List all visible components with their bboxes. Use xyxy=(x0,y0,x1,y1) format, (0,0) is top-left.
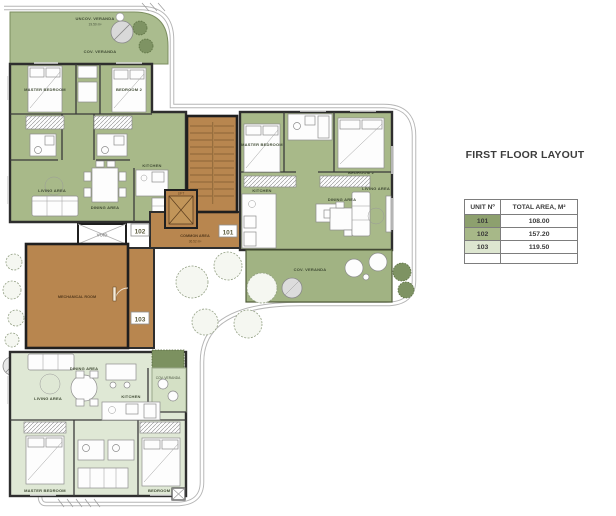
unit-103: LIVING AREA DINING AREA KITCHEN MASTER B… xyxy=(8,350,186,496)
void: VOID xyxy=(78,224,126,244)
column-header-area: TOTAL AREA, M² xyxy=(501,200,578,215)
table-row-empty xyxy=(465,254,578,264)
bed xyxy=(244,124,280,172)
room-label: LIVING AREA xyxy=(38,188,66,193)
tree-icon xyxy=(176,266,208,298)
room-label: COV. VERANDA xyxy=(294,267,327,272)
common-area-label: COMMON AREA xyxy=(180,234,210,238)
table-header-row: UNIT Nº TOTAL AREA, M² xyxy=(465,200,578,215)
column-header-unit: UNIT Nº xyxy=(465,200,501,215)
page-title: FIRST FLOOR LAYOUT xyxy=(452,149,598,161)
room-label: MASTER BEDROOM xyxy=(24,488,66,493)
unit-tag-103: 103 xyxy=(135,317,146,324)
room-label: LIVING AREA xyxy=(34,396,62,401)
shrub-icon xyxy=(8,310,24,326)
room-label: BEDROOM 2 xyxy=(348,170,375,175)
room-label: BEDROOM 2 xyxy=(148,488,175,493)
tree-icon xyxy=(139,39,153,53)
room-label: MASTER BEDROOM xyxy=(241,142,283,147)
sofa xyxy=(28,354,74,370)
tree-icon xyxy=(398,282,414,298)
room-label: KITCHEN xyxy=(121,394,140,399)
area-table: UNIT Nº TOTAL AREA, M² 101 108.00 102 15… xyxy=(464,199,578,264)
tree-icon xyxy=(214,252,242,280)
area-cell: 119.50 xyxy=(501,241,578,254)
lift: LIFT xyxy=(165,190,197,228)
room-label: COV. VERANDA xyxy=(156,376,181,380)
room-label: COV. VERANDA xyxy=(84,49,117,54)
shrub-icon xyxy=(3,281,21,299)
void-label: VOID xyxy=(97,233,108,238)
room-label: UNCOV. VERANDA xyxy=(76,16,115,21)
unit-cell-empty xyxy=(465,254,501,264)
table-row: 101 108.00 xyxy=(465,215,578,228)
tree-icon xyxy=(393,263,411,281)
room-label: BEDROOM 2 xyxy=(116,87,143,92)
unit-102: UNCOV. VERANDA 19.50 m² COV. VERANDA MAS… xyxy=(8,12,186,222)
room-label: DINING AREA xyxy=(70,366,99,371)
common-corridor xyxy=(128,248,154,348)
area-cell-empty xyxy=(501,254,578,264)
unit103-planter xyxy=(152,350,184,368)
closet xyxy=(78,66,97,102)
unit-cell: 102 xyxy=(465,228,501,241)
shrub-icon xyxy=(6,254,22,270)
room-label: KITCHEN xyxy=(252,188,271,193)
kitchen-counter xyxy=(102,402,160,420)
room-label: MASTER BEDROOM xyxy=(24,87,66,92)
tree-icon xyxy=(192,309,218,335)
sofa xyxy=(32,196,78,216)
ac-unit-box xyxy=(172,488,185,500)
unit-cell: 103 xyxy=(465,241,501,254)
tree-icon xyxy=(133,21,147,35)
shrub-icon xyxy=(5,333,19,347)
common-area-value: 36.52 m² xyxy=(189,240,202,244)
room-label: DINING AREA xyxy=(91,205,120,210)
table-row: 102 157.20 xyxy=(465,228,578,241)
unit-cell: 101 xyxy=(465,215,501,228)
tree-icon xyxy=(247,273,277,303)
table-row: 103 119.50 xyxy=(465,241,578,254)
room-label: DINING AREA xyxy=(328,197,357,202)
area-cell: 108.00 xyxy=(501,215,578,228)
bed xyxy=(142,438,180,486)
bed xyxy=(338,118,384,168)
room-label: KITCHEN xyxy=(142,163,161,168)
page: { "header": { "title": "FIRST FLOOR LAYO… xyxy=(0,0,616,516)
unit-tag-102: 102 xyxy=(135,229,146,236)
bed xyxy=(26,436,64,484)
bathroom-fixtures xyxy=(288,114,332,140)
mechanical-room-label: MECHANICAL ROOM xyxy=(58,295,96,299)
room-area: 19.50 m² xyxy=(88,23,102,27)
lift-label: LIFT xyxy=(178,192,185,196)
unit-tag-101: 101 xyxy=(223,230,234,237)
area-cell: 157.20 xyxy=(501,228,578,241)
room-label: LIVING AREA xyxy=(362,186,390,191)
tree-icon xyxy=(234,310,262,338)
